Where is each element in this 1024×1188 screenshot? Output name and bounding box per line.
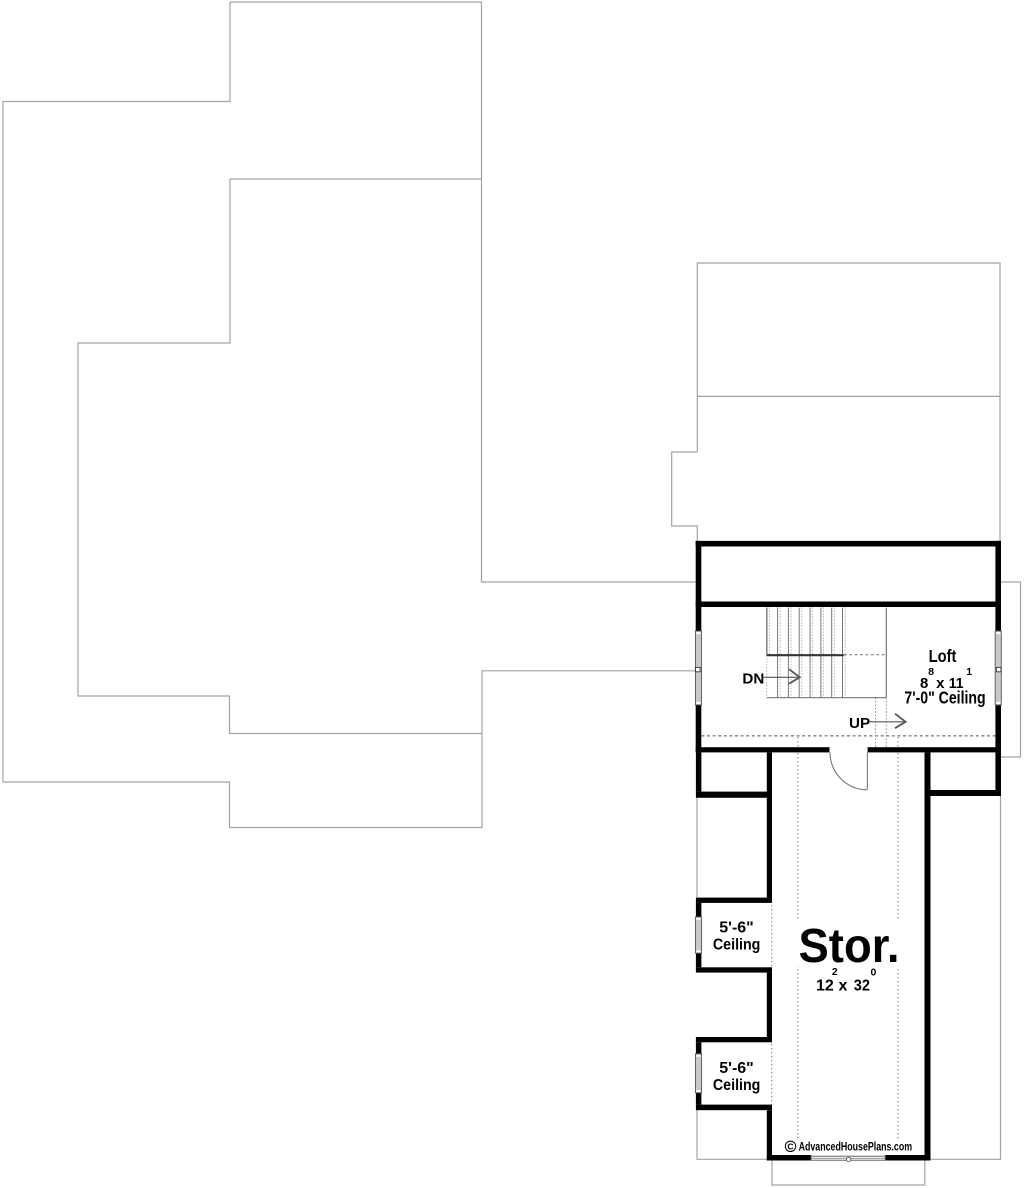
svg-text:UP: UP	[849, 715, 870, 732]
svg-text:2: 2	[832, 966, 838, 978]
svg-text:7'-0" Ceiling: 7'-0" Ceiling	[904, 688, 985, 708]
svg-text:32: 32	[854, 977, 870, 994]
svg-text:1: 1	[966, 666, 972, 678]
svg-text:12: 12	[816, 977, 834, 994]
svg-text:8: 8	[928, 666, 934, 678]
svg-text:DN: DN	[742, 670, 764, 687]
svg-text:Ceiling: Ceiling	[713, 937, 761, 954]
svg-text:AdvancedHousePlans.com: AdvancedHousePlans.com	[799, 1142, 913, 1154]
svg-text:C: C	[787, 1141, 793, 1151]
svg-text:Stor.: Stor.	[799, 920, 900, 973]
svg-text:5'-6": 5'-6"	[719, 1060, 754, 1077]
svg-text:x: x	[839, 977, 848, 994]
svg-text:0: 0	[871, 966, 877, 978]
svg-text:5'-6": 5'-6"	[719, 920, 754, 937]
svg-text:Loft: Loft	[929, 646, 957, 666]
svg-text:Ceiling: Ceiling	[713, 1077, 761, 1094]
